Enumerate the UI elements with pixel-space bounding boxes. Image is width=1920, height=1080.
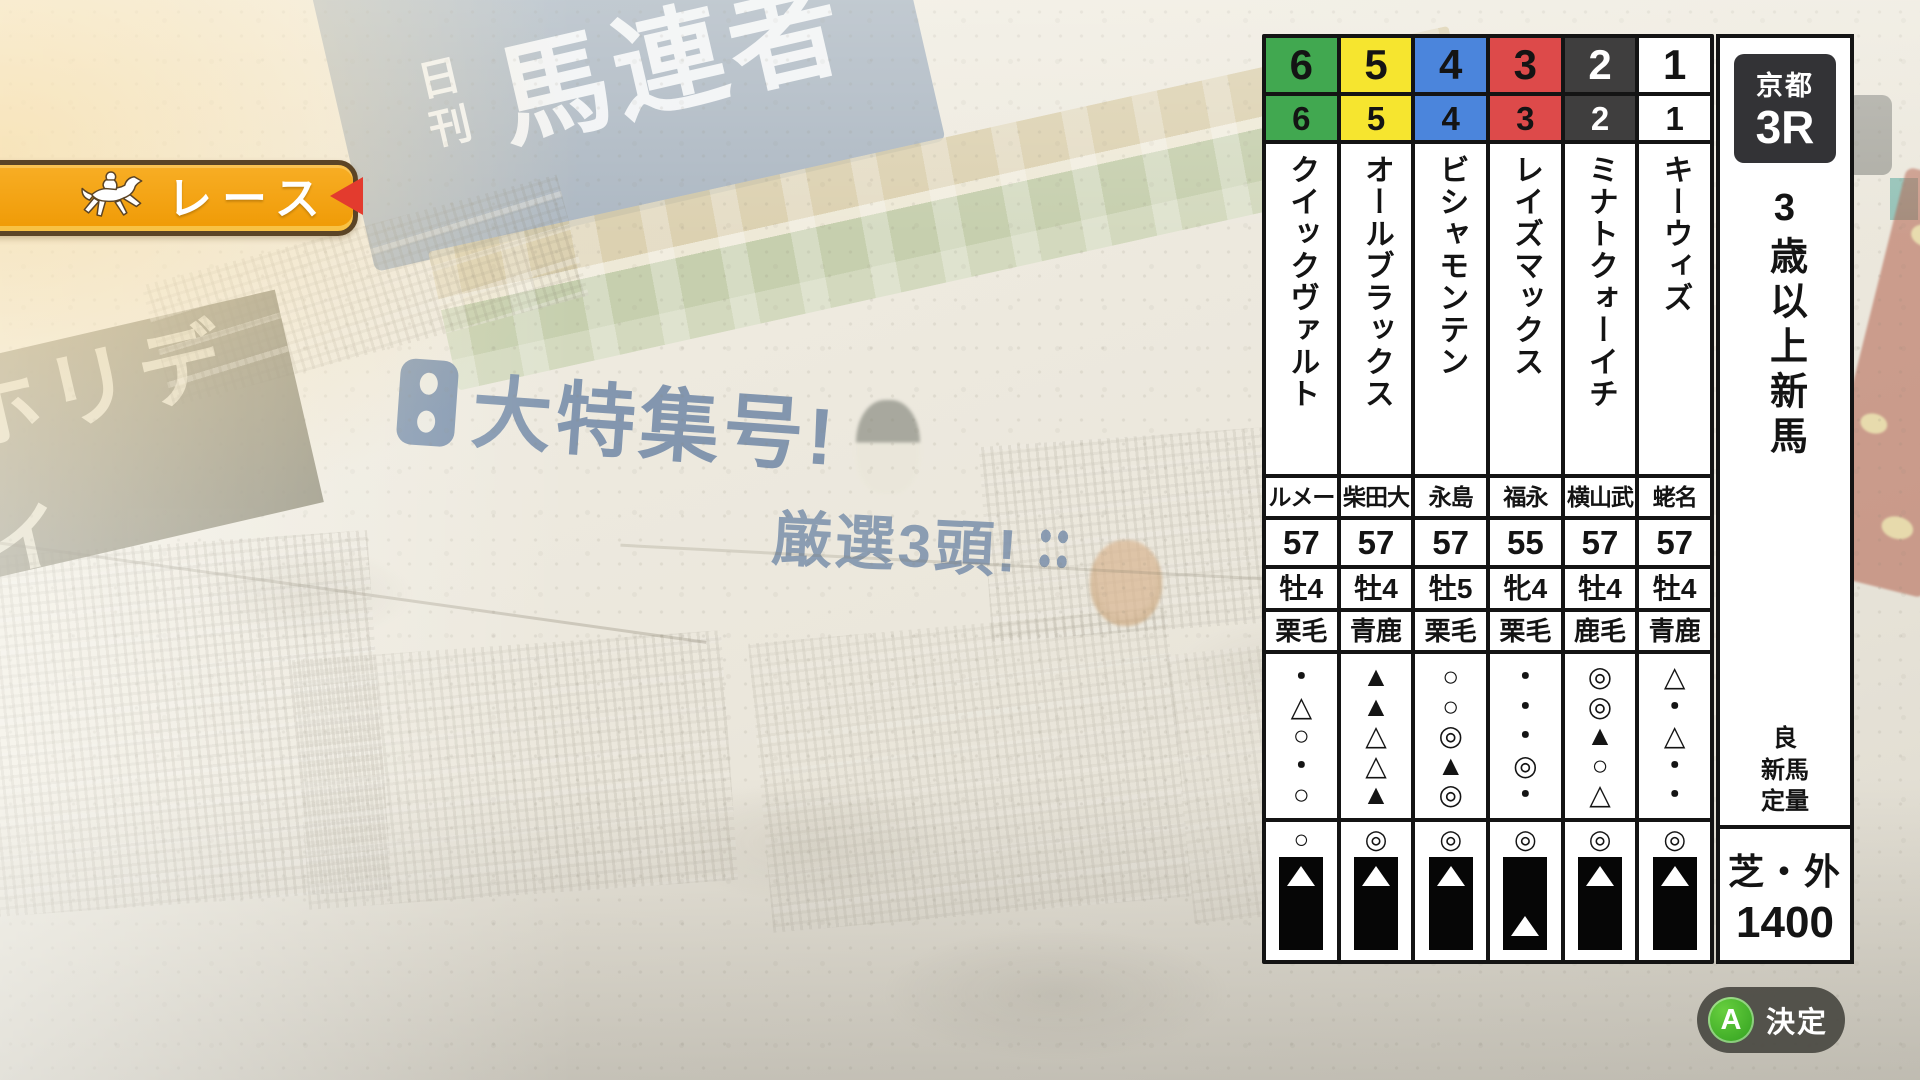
condition-bar (1279, 857, 1323, 950)
pundit-mark: ◎ (1438, 781, 1462, 809)
carried-weight: 57 (1266, 520, 1337, 565)
pundit-marks: ・・・◎・ (1490, 654, 1561, 818)
final-mark: ○ (1293, 825, 1309, 854)
faded-photo-face (1090, 540, 1162, 626)
final-mark-and-bar: ◎ (1565, 822, 1636, 960)
pundit-mark: ・ (1287, 752, 1315, 780)
pundit-mark: ・ (1511, 693, 1539, 721)
confirm-button[interactable]: A 決定 (1697, 987, 1845, 1053)
frame-number-cell: 1 (1639, 38, 1710, 92)
pundit-mark: ▲ (1586, 722, 1614, 750)
masthead-title: 馬連者 (479, 0, 860, 171)
horse-number-cell: 4 (1415, 96, 1486, 140)
final-mark: ◎ (1589, 825, 1612, 854)
faded-photo-figure (856, 400, 920, 494)
newsprint-texture (748, 607, 1192, 933)
race-banner-label: レース (167, 176, 330, 221)
race-info-panel: 京都 3R 3歳以上新馬 良 新馬 定量 芝・外 1400 (1716, 34, 1854, 964)
horse-name: ミナトクォーイチ (1584, 154, 1616, 410)
newspaper-headline-sub: 厳選3頭! (770, 490, 1075, 593)
horse-name-cell: クイックヴァルト (1266, 144, 1337, 474)
newsprint-texture (292, 630, 738, 909)
a-button-letter: A (1721, 1004, 1742, 1037)
final-mark-and-bar: ◎ (1639, 822, 1710, 960)
horse-column-4[interactable]: 44ビシャモンテン永島57牡5栗毛○○◎▲◎◎ (1415, 38, 1486, 960)
pundit-mark: ○ (1442, 693, 1459, 721)
jockey-name: 永島 (1415, 478, 1486, 516)
race-conditions: 3歳以上新馬 (1758, 187, 1813, 461)
horse-number-cell: 1 (1639, 96, 1710, 140)
sex-age: 牡5 (1415, 569, 1486, 608)
carried-weight: 57 (1639, 520, 1710, 565)
final-mark-and-bar: ◎ (1490, 822, 1561, 960)
pundit-mark: ○ (1293, 781, 1310, 809)
a-button-icon: A (1708, 997, 1754, 1043)
horse-name-cell: レイズマックス (1490, 144, 1561, 474)
sex-age: 牡4 (1266, 569, 1337, 608)
bar-triangle-icon (1511, 916, 1539, 936)
surface-distance-box: 芝・外 1400 (1720, 825, 1850, 960)
pundit-mark: △ (1589, 781, 1611, 809)
pundit-mark: ◎ (1588, 663, 1612, 691)
coat-color: 栗毛 (1490, 612, 1561, 650)
pundit-mark: ・ (1287, 663, 1315, 691)
pundit-mark: ▲ (1362, 693, 1390, 721)
frame-number-cell: 5 (1341, 38, 1412, 92)
bar-triangle-icon (1287, 866, 1315, 886)
pundit-mark: ▲ (1437, 752, 1465, 780)
final-mark: ◎ (1514, 825, 1537, 854)
pundit-mark: ◎ (1513, 752, 1537, 780)
bar-triangle-icon (1437, 866, 1465, 886)
bar-triangle-icon (1661, 866, 1689, 886)
headline-sub-text: 厳選3頭! (770, 490, 1023, 590)
carried-weight: 57 (1415, 520, 1486, 565)
pundit-mark: ・ (1511, 722, 1539, 750)
bar-triangle-icon (1586, 866, 1614, 886)
race-class: 新馬 (1761, 755, 1809, 786)
sex-age: 牝4 (1490, 569, 1561, 608)
sex-age: 牡4 (1639, 569, 1710, 608)
condition-bar (1354, 857, 1398, 950)
horse-name: クイックヴァルト (1286, 154, 1318, 410)
horse-column-2[interactable]: 22ミナトクォーイチ横山武57牡4鹿毛◎◎▲○△◎ (1565, 38, 1636, 960)
jockey-name: 柴田大 (1341, 478, 1412, 516)
final-mark: ◎ (1439, 825, 1462, 854)
frame-number-cell: 2 (1565, 38, 1636, 92)
condition-bar (1653, 857, 1697, 950)
pundit-marks: ◎◎▲○△ (1565, 654, 1636, 818)
pundit-mark: ・ (1511, 663, 1539, 691)
pundit-mark: ▲ (1362, 781, 1390, 809)
weight-rule: 定量 (1761, 786, 1809, 817)
game-screen: 日刊 馬連者 ホリディ 大特集号! 厳選3頭! (0, 0, 1920, 1080)
pundit-marks: ・△○・○ (1266, 654, 1337, 818)
final-mark-and-bar: ◎ (1415, 822, 1486, 960)
pundit-marks: △・△・・ (1639, 654, 1710, 818)
pundit-mark: △ (1365, 752, 1387, 780)
surface: 芝・外 (1720, 843, 1850, 895)
jockey-name: ルメー (1266, 478, 1337, 516)
carried-weight: 55 (1490, 520, 1561, 565)
masthead-prefix: 日刊 (401, 50, 483, 161)
horse-name: キーウィズ (1659, 154, 1691, 314)
coat-color: 栗毛 (1266, 612, 1337, 650)
pundit-marks: ▲▲△△▲ (1341, 654, 1412, 818)
pundit-mark: ◎ (1438, 722, 1462, 750)
newspaper-headline-main: 大特集号! (394, 343, 842, 489)
pundit-marks: ○○◎▲◎ (1415, 654, 1486, 818)
coat-color: 鹿毛 (1565, 612, 1636, 650)
pundit-mark: △ (1664, 663, 1686, 691)
pundit-mark: ・ (1661, 693, 1689, 721)
race-number: 3R (1734, 103, 1836, 151)
coat-color: 青鹿 (1341, 612, 1412, 650)
horse-number-cell: 3 (1490, 96, 1561, 140)
jockey-name: 横山武 (1565, 478, 1636, 516)
horse-column-1[interactable]: 11キーウィズ蛯名57牡4青鹿△・△・・◎ (1639, 38, 1710, 960)
carried-weight: 57 (1341, 520, 1412, 565)
coat-color: 青鹿 (1639, 612, 1710, 650)
horse-number-cell: 5 (1341, 96, 1412, 140)
pundit-mark: ○ (1293, 722, 1310, 750)
sex-age: 牡4 (1565, 569, 1636, 608)
track-name: 京都 (1734, 64, 1836, 103)
jockey-name: 蛯名 (1639, 478, 1710, 516)
frame-number-cell: 4 (1415, 38, 1486, 92)
pundit-mark: ◎ (1588, 693, 1612, 721)
pundit-mark: ・ (1661, 781, 1689, 809)
frame-number-cell: 6 (1266, 38, 1337, 92)
frame-number-cell: 3 (1490, 38, 1561, 92)
horse-number-cell: 2 (1565, 96, 1636, 140)
pundit-mark: ・ (1511, 781, 1539, 809)
horse-number-cell: 6 (1266, 96, 1337, 140)
headline-main-text: 大特集号! (468, 348, 842, 489)
pundit-mark: △ (1664, 722, 1686, 750)
jockey-name: 福永 (1490, 478, 1561, 516)
back-arrow-icon[interactable] (330, 177, 363, 215)
track-race-box: 京都 3R (1734, 54, 1836, 163)
horse-column-6[interactable]: 66クイックヴァルトルメー57牡4栗毛・△○・○○ (1266, 38, 1337, 960)
pundit-mark: ○ (1442, 663, 1459, 691)
horse-name: レイズマックス (1510, 154, 1542, 378)
final-mark-and-bar: ○ (1266, 822, 1337, 960)
horse-name-cell: ビシャモンテン (1415, 144, 1486, 474)
horse-name: オールブラックス (1360, 154, 1392, 410)
carried-weight: 57 (1565, 520, 1636, 565)
coat-color: 栗毛 (1415, 612, 1486, 650)
pundit-mark: △ (1291, 693, 1313, 721)
condition-bar (1429, 857, 1473, 950)
horse-column-5[interactable]: 55オールブラックス柴田大57牡4青鹿▲▲△△▲◎ (1341, 38, 1412, 960)
race-card-table: 66クイックヴァルトルメー57牡4栗毛・△○・○○55オールブラックス柴田大57… (1262, 34, 1714, 964)
horse-jockey-icon (79, 168, 147, 228)
final-mark: ◎ (1365, 825, 1388, 854)
horse-column-3[interactable]: 33レイズマックス福永55牝4栗毛・・・◎・◎ (1490, 38, 1561, 960)
condition-bar (1578, 857, 1622, 950)
pundit-mark: ・ (1661, 752, 1689, 780)
horse-name-cell: キーウィズ (1639, 144, 1710, 474)
horse-name-cell: ミナトクォーイチ (1565, 144, 1636, 474)
pundit-mark: ▲ (1362, 663, 1390, 691)
pundit-mark: △ (1365, 722, 1387, 750)
going: 良 (1761, 723, 1809, 754)
race-banner: レース (0, 160, 358, 236)
final-mark-and-bar: ◎ (1341, 822, 1412, 960)
bar-triangle-icon (1362, 866, 1390, 886)
condition-bar (1503, 857, 1547, 950)
pundit-mark: ○ (1592, 752, 1609, 780)
horse-name: ビシャモンテン (1435, 154, 1467, 378)
headline-stamp-icon (396, 358, 460, 448)
final-mark: ◎ (1663, 825, 1686, 854)
sex-age: 牡4 (1341, 569, 1412, 608)
distance: 1400 (1720, 895, 1850, 950)
horse-name-cell: オールブラックス (1341, 144, 1412, 474)
race-meta: 良 新馬 定量 (1761, 723, 1809, 817)
confirm-label: 決定 (1766, 999, 1828, 1041)
